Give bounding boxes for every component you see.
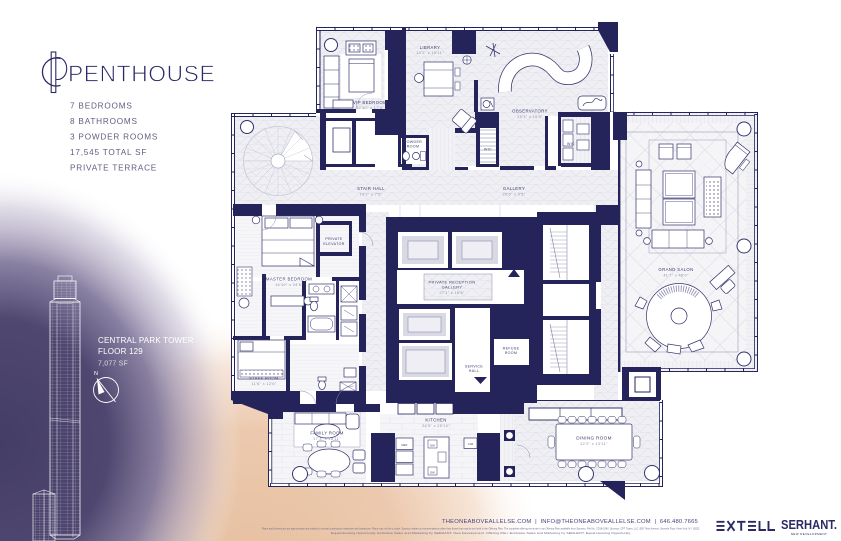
svg-text:14'2" x 7'5": 14'2" x 7'5" xyxy=(360,193,383,197)
svg-text:Equal Housing Opportunity. Exc: Equal Housing Opportunity. Exclusive Sal… xyxy=(331,531,631,535)
svg-text:24'5" x 25'10": 24'5" x 25'10" xyxy=(422,424,450,428)
svg-text:ELEVATOR: ELEVATOR xyxy=(323,242,344,246)
svg-text:11'6" x 12'6": 11'6" x 12'6" xyxy=(251,382,276,386)
svg-text:20'6" x 9'5": 20'6" x 9'5" xyxy=(503,193,526,197)
svg-text:STAIR HALL: STAIR HALL xyxy=(357,186,385,191)
svg-text:WIC: WIC xyxy=(567,142,575,146)
svg-text:MASTER BEDROOM: MASTER BEDROOM xyxy=(266,277,312,282)
svg-text:14'10" x 24'5": 14'10" x 24'5" xyxy=(275,283,303,287)
svg-text:GRAND SALON: GRAND SALON xyxy=(658,267,693,272)
svg-text:VIP BEDROOM: VIP BEDROOM xyxy=(353,100,387,105)
svg-text:ROOM: ROOM xyxy=(407,145,420,149)
svg-text:KITCHEN: KITCHEN xyxy=(425,418,446,423)
svg-text:PENTHOUSE: PENTHOUSE xyxy=(68,61,215,87)
svg-text:FLOOR 129: FLOOR 129 xyxy=(98,347,143,356)
svg-text:14'2" x 15'11": 14'2" x 15'11" xyxy=(416,51,444,55)
svg-text:SERHANT.: SERHANT. xyxy=(781,517,837,532)
svg-text:NEW DEVELOPMENT: NEW DEVELOPMENT xyxy=(791,532,828,536)
svg-text:THEONEABOVEALLELSE.COM | INF: THEONEABOVEALLELSE.COM | INFO@THEONEABOV… xyxy=(442,519,698,525)
svg-text:STAFF ROOM: STAFF ROOM xyxy=(249,376,278,381)
svg-text:ROOM: ROOM xyxy=(505,351,518,355)
svg-text:12'10" x 17'4": 12'10" x 17'4" xyxy=(356,106,384,110)
svg-text:41'7" x 46'0": 41'7" x 46'0" xyxy=(663,274,689,278)
svg-text:PRIVATE TERRACE: PRIVATE TERRACE xyxy=(70,164,157,173)
svg-text:8 BATHROOMS: 8 BATHROOMS xyxy=(70,117,138,126)
svg-text:LIBRARY: LIBRARY xyxy=(420,45,441,50)
svg-text:OBSERVATORY: OBSERVATORY xyxy=(512,109,548,114)
svg-text:17,545 TOTAL SF: 17,545 TOTAL SF xyxy=(70,148,147,157)
svg-text:N: N xyxy=(94,371,98,377)
svg-text:DW: DW xyxy=(430,444,435,448)
svg-text:17'3" x 18'11": 17'3" x 18'11" xyxy=(313,437,341,441)
svg-text:HALL: HALL xyxy=(469,369,479,373)
svg-text:7,077 SF: 7,077 SF xyxy=(98,361,128,368)
svg-text:GALLERY: GALLERY xyxy=(442,285,463,290)
svg-text:SERVICE: SERVICE xyxy=(465,365,483,369)
svg-text:3 POWDER ROOMS: 3 POWDER ROOMS xyxy=(70,133,158,142)
svg-text:GALLERY: GALLERY xyxy=(503,186,525,191)
svg-text:DW: DW xyxy=(430,471,435,475)
svg-text:REFUSE: REFUSE xyxy=(503,347,520,351)
svg-text:PRIVATE: PRIVATE xyxy=(325,237,343,241)
svg-text:CLR: CLR xyxy=(468,442,474,446)
svg-text:CENTRAL PARK TOWER: CENTRAL PARK TOWER xyxy=(98,336,194,345)
svg-text:25'1" x 15'5": 25'1" x 15'5" xyxy=(517,115,543,119)
svg-text:FAMILY ROOM: FAMILY ROOM xyxy=(310,431,343,436)
svg-text:POWDER: POWDER xyxy=(404,140,422,144)
svg-text:REF: REF xyxy=(402,443,408,447)
svg-text:22'2" x 13'11": 22'2" x 13'11" xyxy=(580,442,608,446)
svg-text:7 BEDROOMS: 7 BEDROOMS xyxy=(70,102,133,111)
svg-text:DINING ROOM: DINING ROOM xyxy=(576,436,612,441)
svg-text:WIC: WIC xyxy=(484,148,492,152)
svg-text:27'1" x 16'5": 27'1" x 16'5" xyxy=(439,291,465,295)
